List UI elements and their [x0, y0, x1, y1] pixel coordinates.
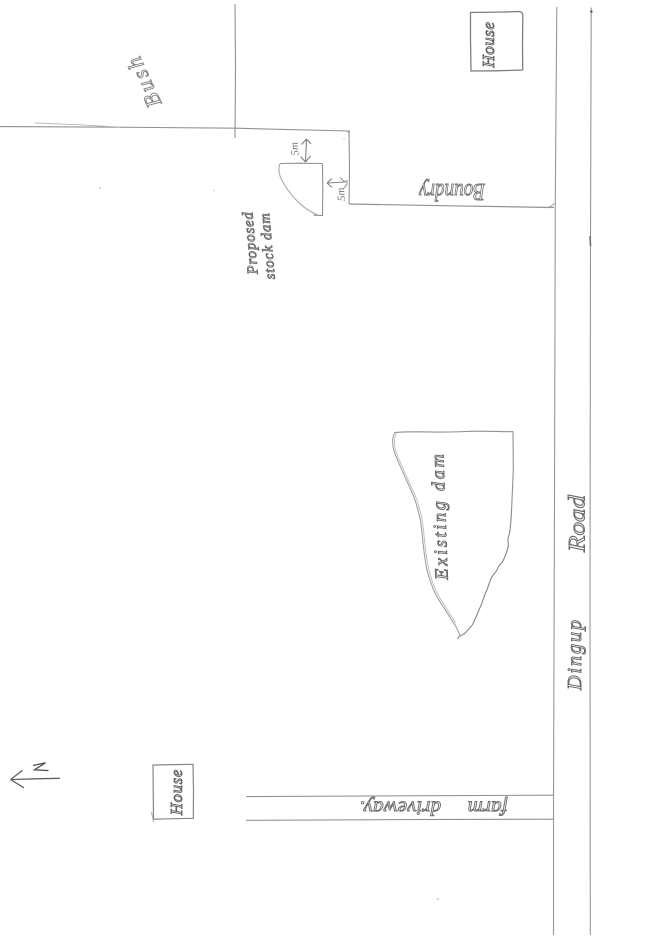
svg-text:Boundry: Boundry [419, 178, 485, 204]
svg-text:5m: 5m [288, 141, 301, 155]
svg-text:farm driveway.: farm driveway. [360, 796, 508, 818]
svg-text:Dingup: Dingup [564, 618, 586, 691]
svg-text:5m: 5m [335, 187, 348, 201]
svg-text:House: House [167, 769, 186, 816]
svg-text:House: House [479, 22, 498, 69]
svg-text:Road: Road [565, 494, 590, 553]
